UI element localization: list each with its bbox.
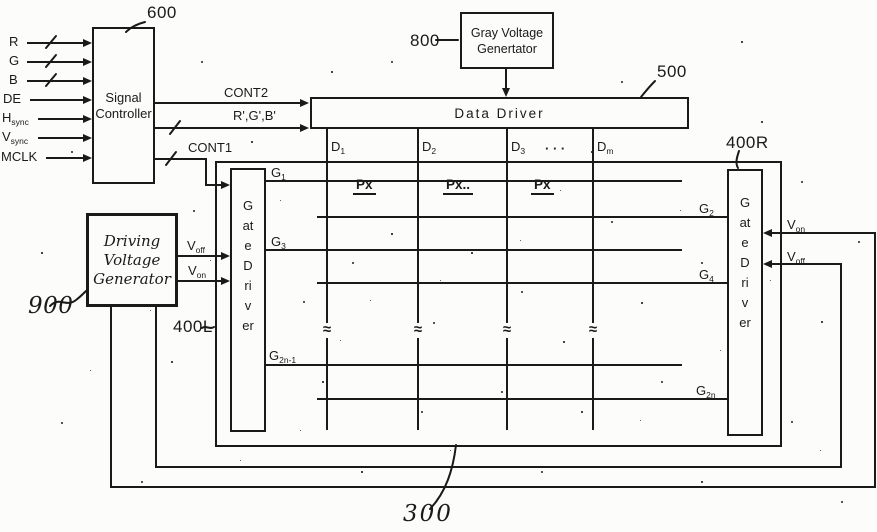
bus-slash (170, 121, 180, 134)
leader-400l (202, 327, 214, 328)
leader-400r (736, 151, 739, 168)
bus-slash (46, 36, 56, 48)
leader-500 (641, 81, 655, 97)
patent-figure-lcd-driver-diagram: Signal Controller Gray Voltage Genertato… (0, 0, 877, 532)
bus-slash (46, 55, 56, 67)
bus-slash (46, 74, 56, 86)
leader-600 (126, 22, 145, 32)
leader-900 (50, 291, 86, 306)
leader-lines (0, 0, 877, 532)
leader-300 (430, 445, 456, 509)
bus-slash (166, 152, 176, 165)
